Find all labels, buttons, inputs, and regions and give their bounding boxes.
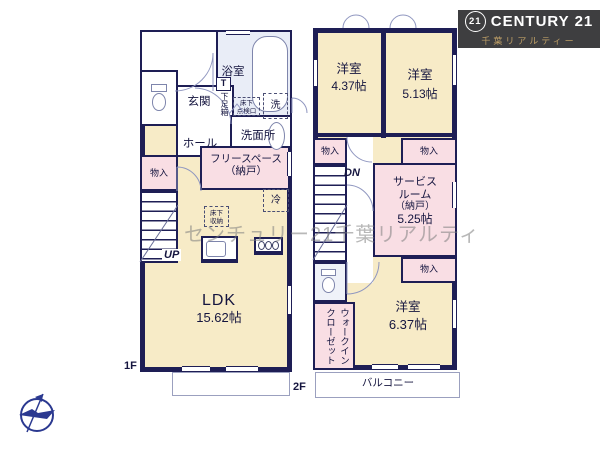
stairs-2f: [313, 165, 347, 262]
floorplan-image: T 下足箱 床下 点検口 洗 冷 床下 収納 浴室 玄関 ホール 洗面所 物入 …: [0, 0, 600, 450]
bedroom2-label: 洋室: [407, 68, 432, 82]
bedroom1-size-label: 4.37帖: [331, 80, 366, 94]
window: [226, 30, 250, 35]
window: [408, 364, 440, 370]
toilet-tank-1f: [151, 84, 167, 92]
window: [372, 364, 398, 370]
window: [287, 286, 292, 314]
laundry-space: 洗: [263, 93, 288, 119]
window: [287, 152, 292, 176]
bathroom-label: 浴室: [222, 66, 245, 79]
window: [313, 60, 318, 86]
walk-in-closet-label: ウォークインクローゼット: [318, 305, 350, 367]
toilet-bowl-2f: [322, 277, 335, 293]
bedroom1-label: 洋室: [336, 62, 361, 76]
free-space-label: フリースペース （納戸）: [210, 153, 282, 177]
century21-seal-icon: 21: [465, 11, 486, 32]
toilet-tank-2f: [321, 269, 336, 276]
watermark-text: センチュリー21千葉リアルティ: [184, 218, 480, 247]
underfloor-inspection-hatch: 床下 点検口: [233, 97, 260, 116]
toilet-bowl-1f: [152, 93, 166, 111]
washroom-label: 洗面所: [241, 130, 276, 143]
north-compass-icon: [14, 388, 60, 436]
closet-2f-bottom-label: 物入: [420, 264, 438, 274]
wall-segment: [212, 367, 224, 372]
ldk-label: LDK: [202, 292, 236, 310]
floor1-label: 1F: [124, 360, 137, 372]
ldk-size-label: 15.62帖: [196, 311, 242, 326]
fridge-space: 冷: [263, 189, 289, 212]
hall-label: ホール: [183, 138, 218, 151]
window: [452, 300, 457, 328]
window: [226, 366, 258, 372]
bedroom-divider-wall: [381, 28, 386, 138]
stairs-up-label: UP: [162, 249, 181, 261]
window: [452, 55, 457, 85]
closet-2f-left-label: 物入: [321, 146, 339, 156]
closet-2f-top-right-label: 物入: [420, 146, 438, 156]
closet-1f-label: 物入: [150, 168, 168, 178]
stairs-down-label: DN: [344, 167, 360, 179]
balcony-label: バルコニー: [362, 377, 414, 389]
logo-subtitle-text: 千葉リアルティー: [481, 34, 576, 47]
floor2-mid-wall: [313, 133, 457, 137]
window: [182, 366, 210, 372]
bedroom3-label: 洋室: [395, 300, 420, 314]
wall-segment: [398, 365, 408, 370]
floor2-label: 2F: [293, 381, 306, 393]
bedroom3-size-label: 6.37帖: [389, 318, 427, 333]
hallway-2f: [347, 137, 373, 283]
window: [452, 182, 457, 208]
terrace: [172, 372, 290, 396]
bedroom2-size-label: 5.13帖: [402, 88, 437, 102]
shoe-box-label: 下足箱: [217, 92, 230, 128]
logo-brand-text: CENTURY 21: [491, 13, 594, 30]
century21-logo: 21 CENTURY 21 千葉リアルティー: [458, 10, 600, 48]
entrance-label: 玄関: [188, 96, 211, 109]
